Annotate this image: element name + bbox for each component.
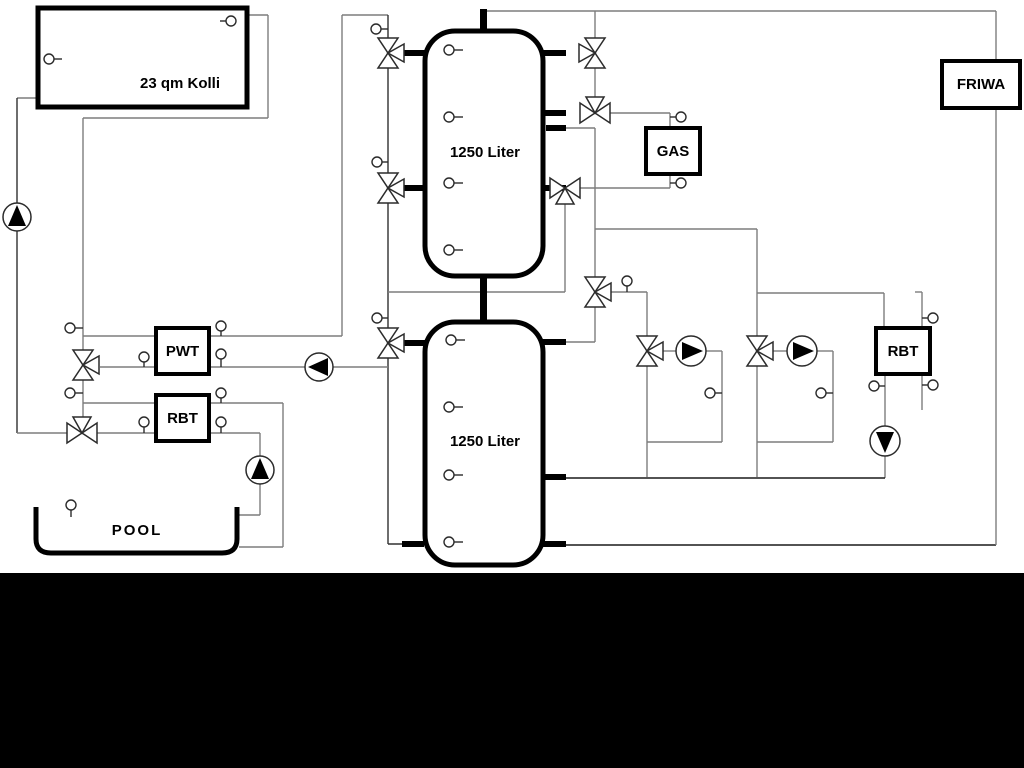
temp-sensor	[139, 352, 149, 367]
stub	[404, 50, 426, 56]
temp-sensor	[139, 417, 149, 433]
three-way-valve-tank1-top-right	[579, 38, 605, 68]
buffer-tank-1	[425, 31, 543, 276]
pool-pump	[246, 456, 274, 484]
temp-sensor	[670, 178, 686, 188]
temp-sensor	[65, 388, 83, 398]
stub	[542, 110, 566, 116]
temp-sensor	[216, 349, 226, 367]
three-way-valve-tank1-top-left	[378, 38, 404, 68]
letterbox-bottom	[0, 573, 1024, 768]
stub	[546, 125, 566, 131]
pwt-charge-pump	[305, 353, 333, 381]
gas-boiler-box	[646, 128, 700, 174]
pool-basin	[36, 507, 237, 553]
temp-sensor	[816, 388, 833, 398]
three-way-valve-tank2-top-left	[378, 328, 404, 358]
three-way-valve-gas-supply	[580, 97, 610, 123]
temp-sensor	[66, 500, 76, 517]
heating-pump-circuit1	[676, 336, 706, 366]
temp-sensor	[216, 388, 226, 403]
temp-sensor	[372, 157, 388, 167]
temp-sensor	[869, 381, 885, 391]
three-way-valve-distribution	[585, 277, 611, 307]
stub	[542, 474, 566, 480]
temp-sensor	[705, 388, 722, 398]
three-way-mixing-valve-circuit1	[637, 336, 663, 366]
tank-connector-stub	[480, 274, 487, 324]
temp-sensor	[216, 417, 226, 433]
temp-sensor	[371, 24, 388, 34]
stub	[404, 340, 426, 346]
three-way-mixing-valve-circuit2	[747, 336, 773, 366]
temp-sensor	[372, 313, 388, 323]
three-way-valve-pwt	[73, 350, 99, 380]
stub	[542, 50, 566, 56]
heating-pump-circuit2	[787, 336, 817, 366]
temp-sensor	[216, 321, 226, 336]
temp-sensor	[670, 112, 686, 122]
rbt-left-box	[156, 395, 209, 441]
temp-sensor	[922, 313, 938, 323]
stub	[542, 339, 566, 345]
three-way-valve-pool	[67, 417, 97, 443]
stub	[402, 541, 424, 547]
solar-collector-box	[38, 8, 247, 107]
solar-pump	[3, 203, 31, 231]
temp-sensor	[922, 380, 938, 390]
temp-sensor	[622, 276, 632, 292]
tank1-top-stub	[480, 9, 487, 33]
three-way-valve-tank1-mid-left	[378, 173, 404, 203]
temp-sensor	[65, 323, 83, 333]
pwt-box	[156, 328, 209, 374]
three-way-valve-gas-return	[550, 178, 580, 204]
friwa-box	[942, 61, 1020, 108]
stub	[542, 541, 566, 547]
buffer-tank-2	[425, 322, 543, 565]
rbt-right-pump	[870, 426, 900, 456]
rbt-right-box	[876, 328, 930, 374]
stub	[404, 185, 426, 191]
schematic-page: 23 qm Kolli 1250 Liter 1250 Liter PWT RB…	[0, 0, 1024, 768]
